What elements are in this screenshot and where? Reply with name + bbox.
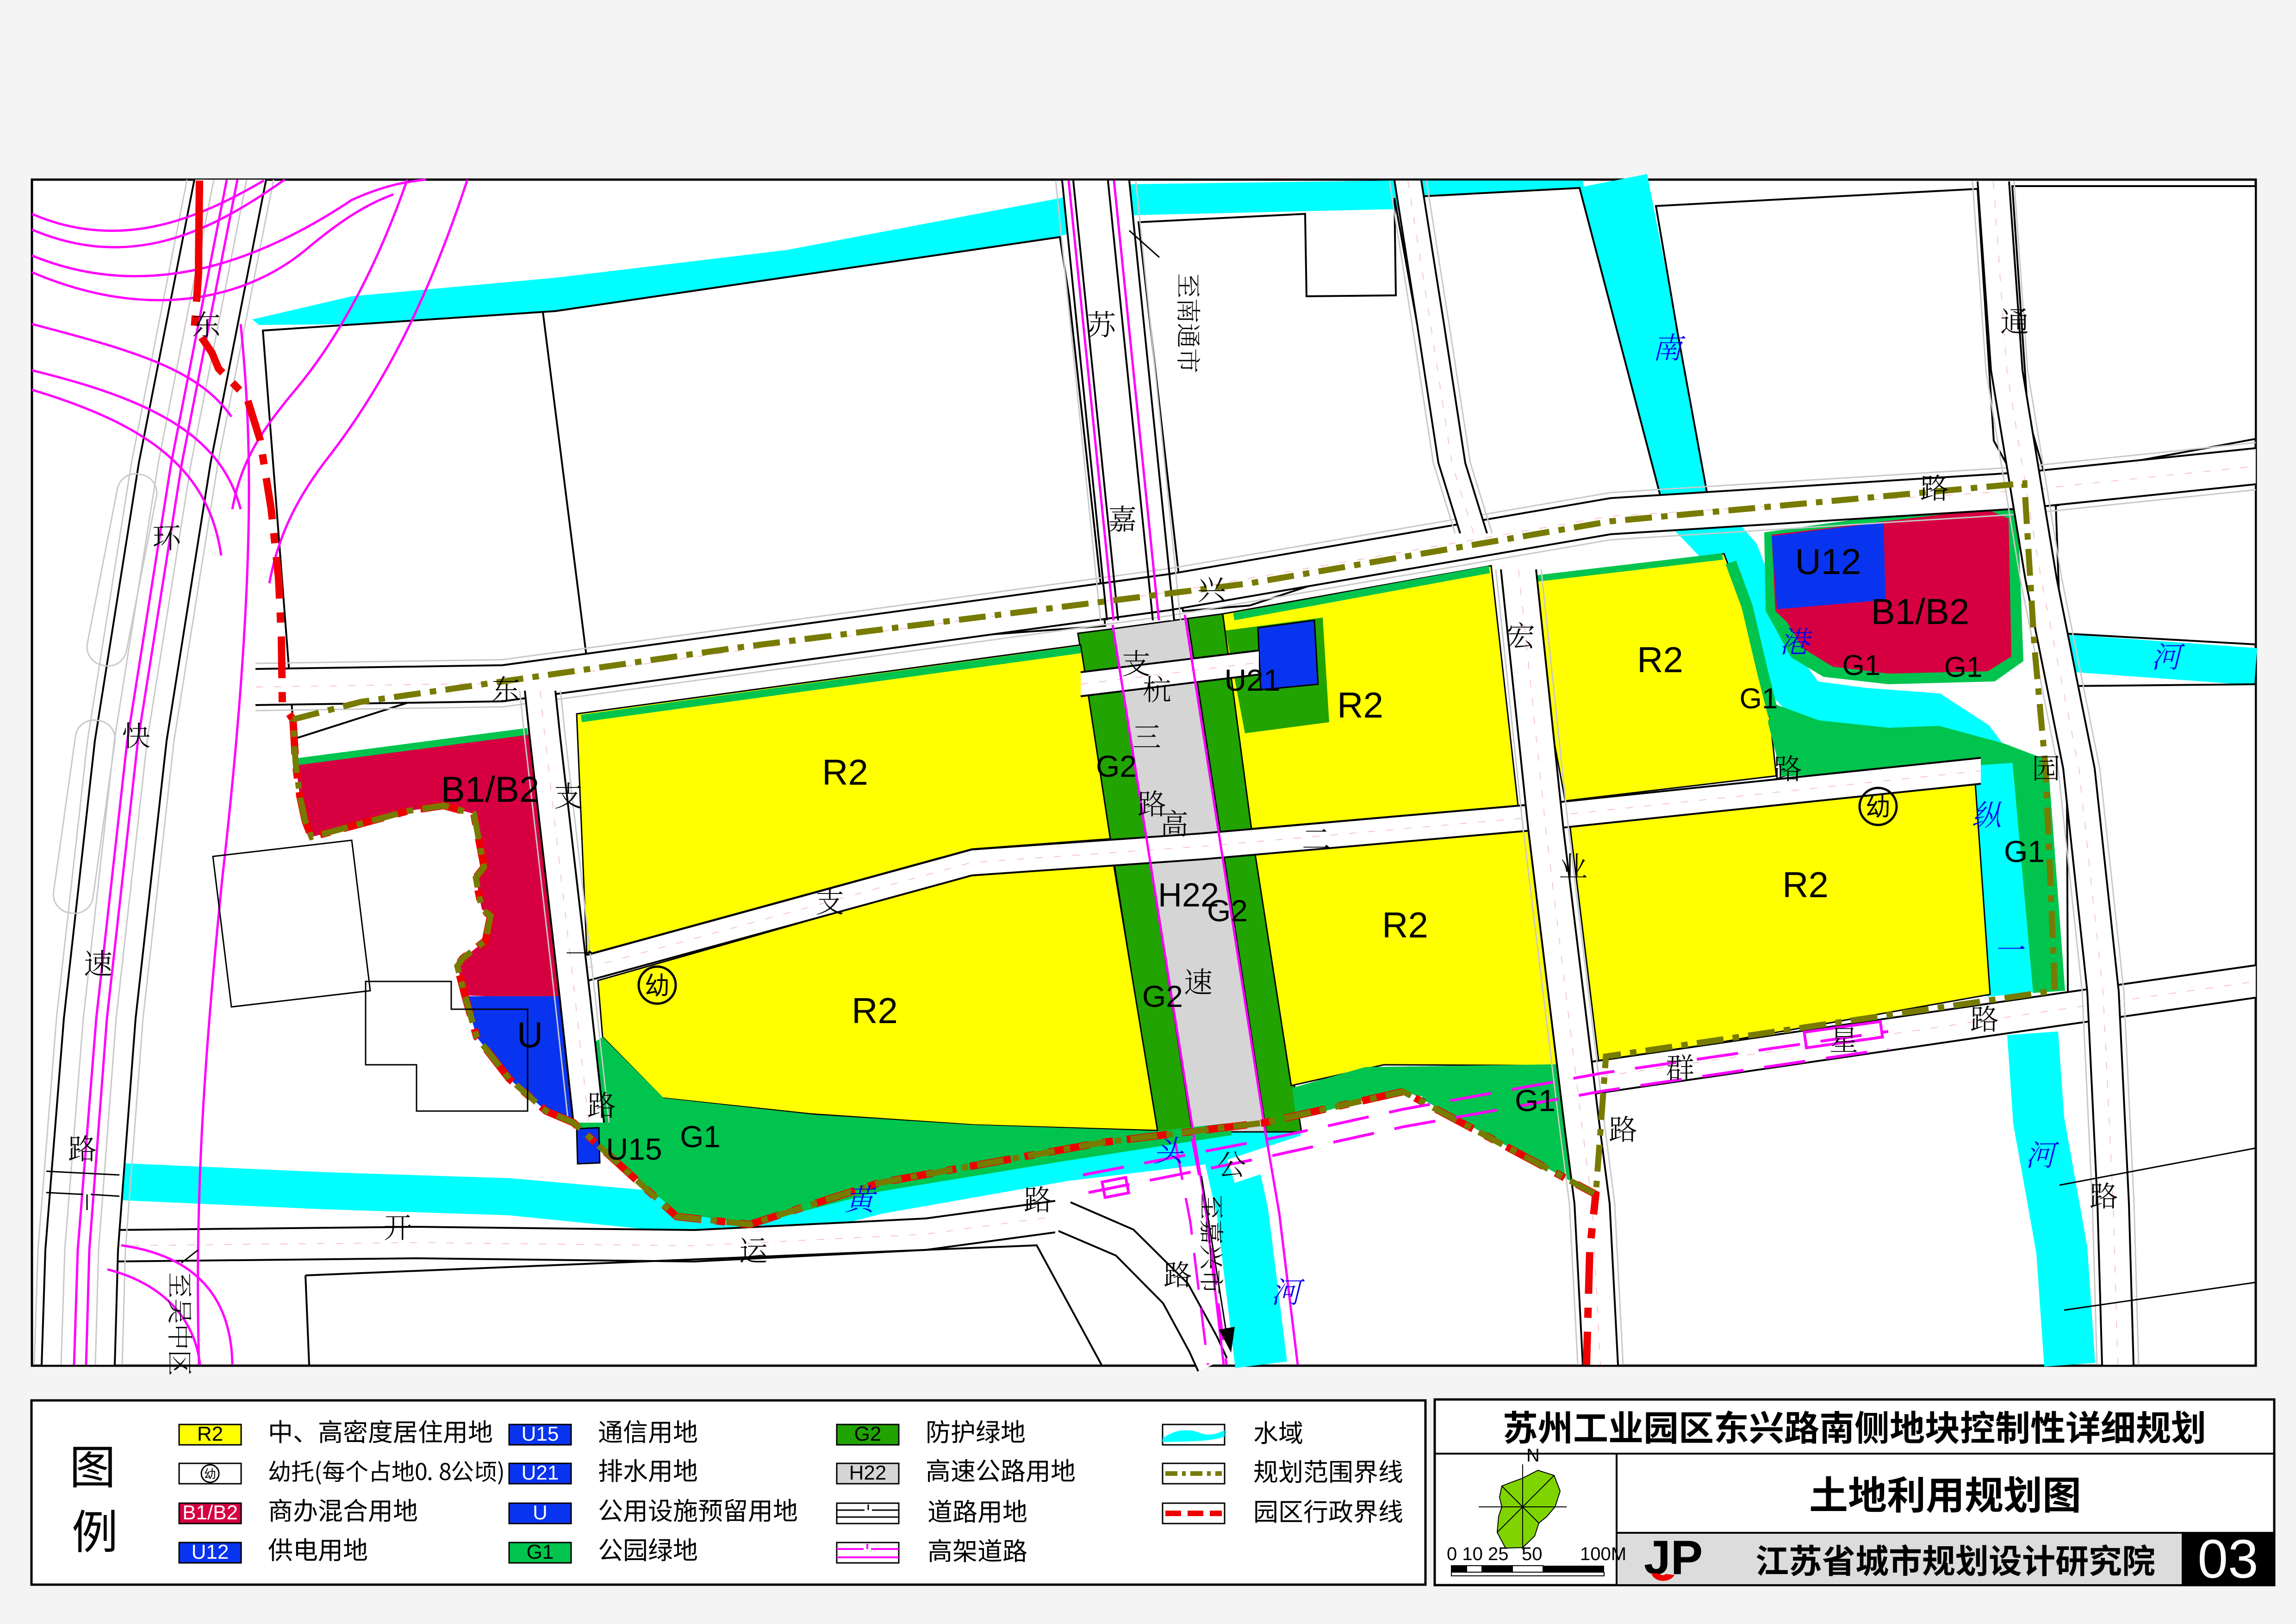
svg-text:U12: U12 bbox=[1795, 541, 1861, 582]
svg-text:G1: G1 bbox=[1842, 650, 1881, 681]
svg-text:G1: G1 bbox=[2004, 834, 2045, 868]
svg-text:U12: U12 bbox=[192, 1541, 229, 1563]
svg-text:G2: G2 bbox=[854, 1423, 882, 1445]
svg-text:U21: U21 bbox=[522, 1462, 559, 1484]
svg-text:B1/B2: B1/B2 bbox=[1871, 591, 1969, 632]
svg-text:G1: G1 bbox=[1740, 683, 1778, 715]
svg-text:R2: R2 bbox=[1337, 685, 1383, 725]
svg-text:50: 50 bbox=[1522, 1544, 1543, 1564]
svg-text:0 10 25: 0 10 25 bbox=[1447, 1544, 1508, 1564]
svg-text:U: U bbox=[517, 1014, 543, 1055]
svg-text:G1: G1 bbox=[1944, 651, 1983, 683]
svg-text:R2: R2 bbox=[852, 990, 898, 1031]
svg-text:100M: 100M bbox=[1580, 1544, 1626, 1564]
svg-text:R2: R2 bbox=[822, 752, 868, 793]
svg-text:U15: U15 bbox=[522, 1423, 559, 1445]
svg-text:G1: G1 bbox=[527, 1541, 554, 1563]
svg-text:B1/B2: B1/B2 bbox=[441, 769, 539, 810]
svg-text:G1: G1 bbox=[1515, 1083, 1556, 1118]
svg-text:R2: R2 bbox=[1637, 639, 1683, 680]
svg-text:R2: R2 bbox=[1382, 905, 1428, 945]
svg-text:R2: R2 bbox=[1782, 864, 1829, 905]
svg-text:G2: G2 bbox=[1096, 749, 1137, 783]
svg-text:U15: U15 bbox=[606, 1132, 662, 1166]
svg-text:H22: H22 bbox=[1158, 877, 1219, 914]
svg-text:U: U bbox=[533, 1501, 548, 1524]
svg-text:G2: G2 bbox=[1142, 979, 1183, 1013]
svg-text:N: N bbox=[1526, 1445, 1540, 1466]
svg-text:U21: U21 bbox=[1224, 663, 1280, 697]
svg-text:B1/B2: B1/B2 bbox=[182, 1501, 238, 1524]
svg-text:R2: R2 bbox=[197, 1423, 223, 1445]
svg-text:H22: H22 bbox=[849, 1462, 887, 1484]
svg-text:G1: G1 bbox=[680, 1119, 721, 1154]
svg-text:03: 03 bbox=[2197, 1529, 2258, 1590]
